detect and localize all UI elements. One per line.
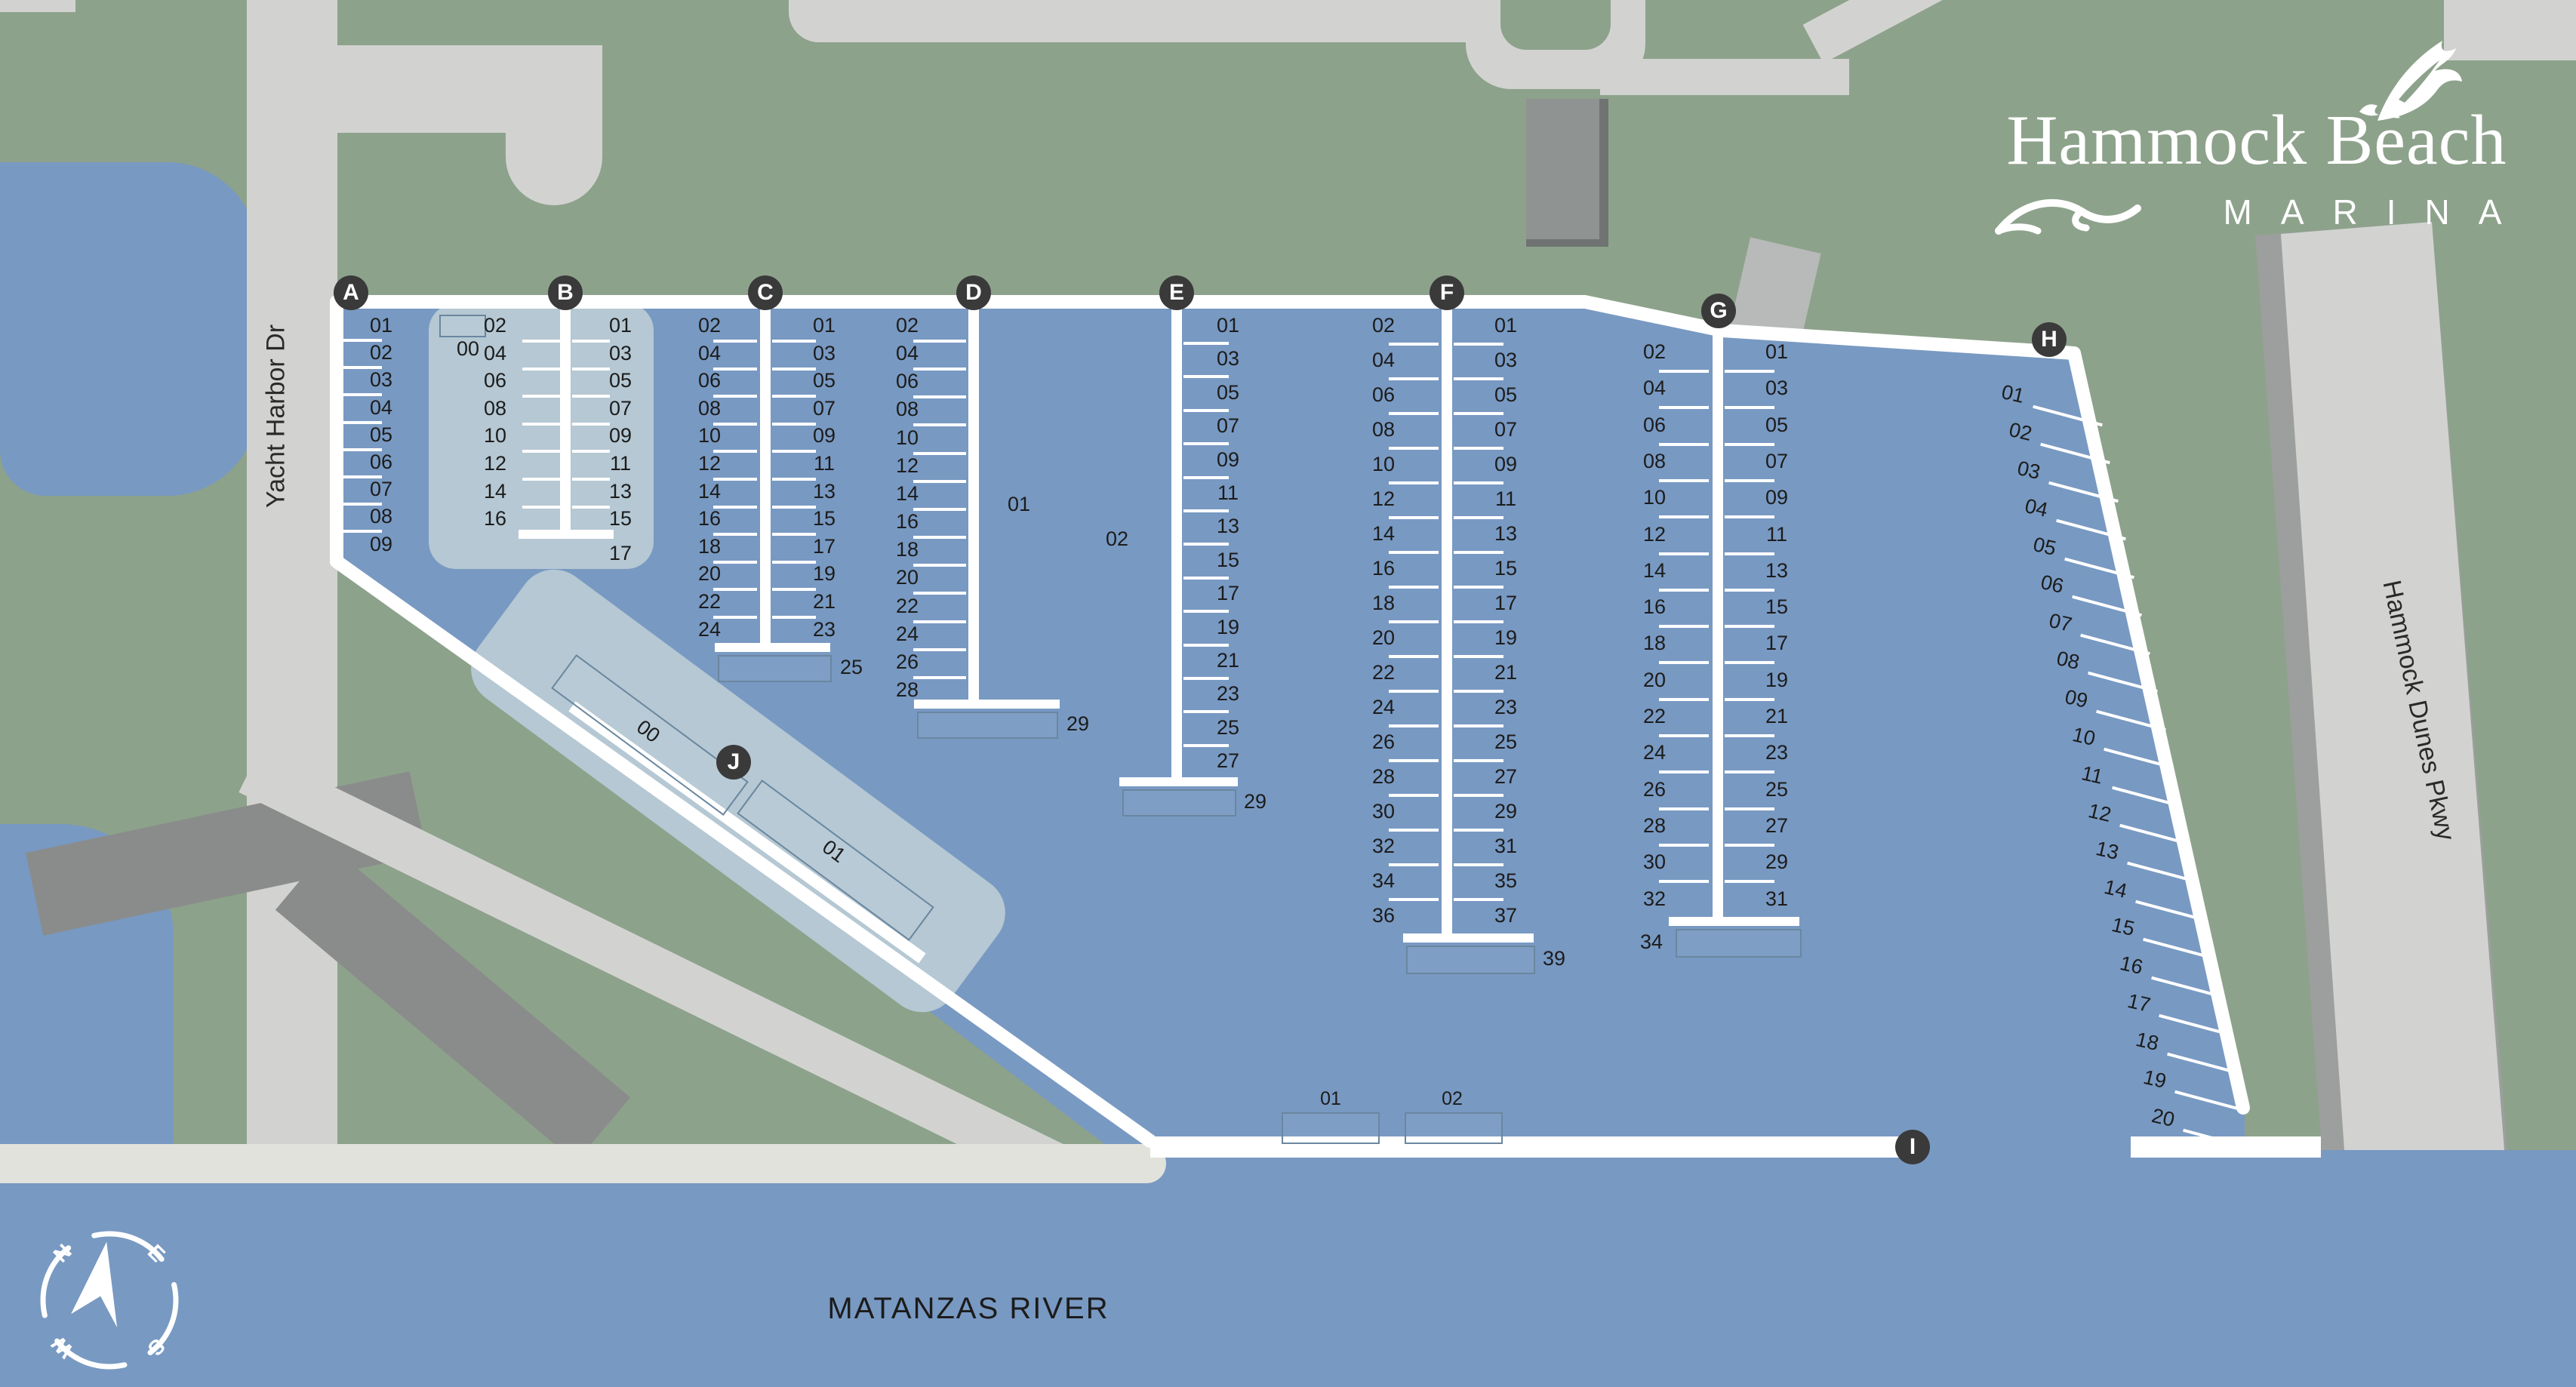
dock-d-slips: 26 <box>882 650 933 674</box>
logo-subtitle: MARINA <box>2166 192 2559 232</box>
dock-b-slips: 13 <box>595 479 646 503</box>
dock-f-slips: 01 <box>1480 313 1531 337</box>
dock-d-slips: 16 <box>882 509 933 534</box>
dock-g-slips: 19 <box>1751 668 1802 692</box>
dock-g-ticks <box>1659 479 1709 482</box>
dock-g-ticks <box>1725 661 1774 664</box>
dock-marker-c: C <box>748 275 783 310</box>
dock-a-slips: 04 <box>355 395 407 420</box>
dock-b-slips: 05 <box>595 368 646 392</box>
dock-b-ticks <box>522 423 560 426</box>
dock-f-slips: 06 <box>1358 383 1409 407</box>
dock-b-slips: 15 <box>595 506 646 531</box>
dock-f-ticks <box>1389 412 1439 415</box>
dock-f-slips: 23 <box>1480 695 1531 719</box>
dock-c-slips: 19 <box>799 561 850 586</box>
dock-c-slips: 08 <box>684 396 735 420</box>
dock-f-slips: 20 <box>1358 626 1409 650</box>
dock-f-slips: 19 <box>1480 626 1531 650</box>
dock-g-ticks <box>1725 734 1774 737</box>
dock-tbar-g <box>1669 917 1799 926</box>
dock-g-ticks <box>1725 625 1774 628</box>
dock-g-ticks <box>1725 589 1774 592</box>
river-label: MATANZAS RIVER <box>742 1292 1195 1326</box>
dock-g-slips: 13 <box>1751 558 1802 583</box>
slip-label: 01 <box>993 492 1045 516</box>
dock-tbar-c <box>715 643 830 652</box>
dock-g-ticks <box>1659 406 1709 409</box>
dock-f-slips: 25 <box>1480 730 1531 754</box>
dock-e-slips: 05 <box>1202 380 1254 404</box>
dock-g-slips: 25 <box>1751 777 1802 801</box>
dock-f-ticks <box>1389 863 1439 866</box>
dock-b-ticks <box>522 478 560 481</box>
dock-marker-i: I <box>1895 1130 1930 1164</box>
dock-b-slips: 10 <box>469 423 521 447</box>
dock-g-ticks <box>1725 515 1774 518</box>
dock-g-slips: 18 <box>1629 631 1680 655</box>
dock-g-slips: 09 <box>1751 485 1802 509</box>
dock-e-ticks <box>1183 744 1229 747</box>
slip-label: 02 <box>1091 527 1143 551</box>
dock-f-slips: 14 <box>1358 521 1409 546</box>
dock-c-slips: 02 <box>684 313 735 337</box>
dock-f-ticks <box>1454 481 1503 484</box>
dock-e-slips: 07 <box>1202 414 1254 438</box>
dock-e-slips: 01 <box>1202 313 1254 337</box>
dock-marker-a: A <box>334 275 368 310</box>
wave-icon <box>1993 178 2166 246</box>
dock-pier-e <box>1171 302 1182 782</box>
dock-f-slips: 09 <box>1480 452 1531 476</box>
dock-c-slips: 16 <box>684 506 735 531</box>
dock-b-ticks <box>522 395 560 398</box>
dock-e-ticks <box>1183 442 1229 445</box>
dock-b-ticks <box>522 340 560 343</box>
dock-g-slips: 05 <box>1751 413 1802 437</box>
dock-b-slips: 11 <box>595 451 646 475</box>
dock-g-slips: 29 <box>1751 850 1802 874</box>
dock-d-slips: 02 <box>882 313 933 337</box>
dock-e-ticks <box>1183 710 1229 713</box>
dock-g-slips: 23 <box>1751 740 1802 764</box>
dock-f-ticks <box>1454 655 1503 658</box>
dock-g-slips: 11 <box>1751 522 1802 546</box>
dock-b-slips: 14 <box>469 479 521 503</box>
dock-g-ticks <box>1659 734 1709 737</box>
dock-pier-g <box>1713 329 1723 921</box>
dock-tbar-e <box>1119 777 1238 786</box>
dock-g-slips: 31 <box>1751 887 1802 911</box>
dock-g-slips: 22 <box>1629 704 1680 728</box>
dock-c-slips: 15 <box>799 506 850 531</box>
dock-g-ticks <box>1725 698 1774 701</box>
slip-outline <box>1405 1112 1503 1144</box>
dock-f-ticks <box>1454 620 1503 623</box>
slip-outline <box>718 655 832 682</box>
dock-g-slips: 28 <box>1629 813 1680 838</box>
dock-g-slips: 14 <box>1629 558 1680 583</box>
slip-label: 29 <box>1230 789 1281 813</box>
dock-g-ticks <box>1725 552 1774 555</box>
dock-c-slips: 05 <box>799 368 850 392</box>
dock-g-slips: 27 <box>1751 813 1802 838</box>
dock-g-ticks <box>1659 443 1709 446</box>
dock-f-ticks <box>1389 690 1439 693</box>
dock-f-ticks <box>1454 863 1503 866</box>
dock-f-slips: 13 <box>1480 521 1531 546</box>
dock-e-ticks <box>1183 577 1229 580</box>
dock-f-ticks <box>1389 724 1439 727</box>
dock-f-ticks <box>1454 343 1503 346</box>
dock-c-slips: 23 <box>799 617 850 641</box>
dock-f-ticks <box>1389 377 1439 380</box>
dock-f-ticks <box>1389 447 1439 450</box>
dock-f-ticks <box>1389 620 1439 623</box>
dock-f-ticks <box>1454 377 1503 380</box>
dock-c-slips: 14 <box>684 479 735 503</box>
dock-d-slips: 20 <box>882 565 933 589</box>
dock-f-slips: 18 <box>1358 591 1409 615</box>
dock-g-slips: 20 <box>1629 668 1680 692</box>
dock-f-slips: 35 <box>1480 869 1531 893</box>
dock-f-ticks <box>1454 447 1503 450</box>
dock-e-ticks <box>1183 543 1229 546</box>
dock-f-slips: 17 <box>1480 591 1531 615</box>
dock-g-ticks <box>1659 515 1709 518</box>
dock-c-slips: 10 <box>684 423 735 447</box>
dock-e-slips: 09 <box>1202 447 1254 472</box>
dock-f-slips: 05 <box>1480 383 1531 407</box>
dock-e-slips: 03 <box>1202 346 1254 371</box>
dock-f-slips: 16 <box>1358 556 1409 580</box>
dock-g-slips: 03 <box>1751 376 1802 400</box>
dock-pier-b <box>560 302 571 537</box>
dock-g-ticks <box>1659 844 1709 847</box>
dock-g-slips: 04 <box>1629 376 1680 400</box>
dock-f-slips: 07 <box>1480 417 1531 441</box>
dock-c-slips: 03 <box>799 341 850 365</box>
dock-a-slips: 06 <box>355 450 407 474</box>
dock-f-slips: 34 <box>1358 869 1409 893</box>
dock-f-ticks <box>1389 343 1439 346</box>
dock-f-ticks <box>1389 898 1439 901</box>
dock-b-slips: 08 <box>469 396 521 420</box>
dock-e-ticks <box>1183 610 1229 613</box>
dock-e-ticks <box>1183 644 1229 647</box>
dock-f-slips: 27 <box>1480 764 1531 789</box>
dock-c-slips: 07 <box>799 396 850 420</box>
dock-b-ticks <box>522 450 560 453</box>
dock-f-ticks <box>1454 412 1503 415</box>
dock-g-ticks <box>1725 770 1774 773</box>
dock-d-slips: 24 <box>882 622 933 646</box>
dock-tbar-f <box>1403 933 1534 943</box>
dock-f-ticks <box>1454 759 1503 762</box>
dock-c-slips: 24 <box>684 617 735 641</box>
dock-g-slips: 32 <box>1629 887 1680 911</box>
dock-g-ticks <box>1659 552 1709 555</box>
dock-a-slips: 07 <box>355 477 407 501</box>
dock-c-slips: 04 <box>684 341 735 365</box>
dock-marker-e: E <box>1159 275 1194 310</box>
dock-d-slips: 04 <box>882 341 933 365</box>
slip-label: 25 <box>826 655 877 679</box>
dock-d-slips: 10 <box>882 426 933 450</box>
dock-g-slips: 10 <box>1629 485 1680 509</box>
dock-marker-g: G <box>1701 294 1736 328</box>
dock-f-ticks <box>1389 655 1439 658</box>
dock-c-slips: 20 <box>684 561 735 586</box>
dock-b-ticks <box>522 533 560 536</box>
dock-e-slips: 11 <box>1202 481 1254 505</box>
dock-marker-h: H <box>2032 322 2067 357</box>
dock-a-slips: 01 <box>355 313 407 337</box>
dock-f-ticks <box>1454 724 1503 727</box>
dock-marker-d: D <box>956 275 991 310</box>
dock-e-ticks <box>1183 409 1229 412</box>
dock-f-slips: 24 <box>1358 695 1409 719</box>
slip-outline <box>1282 1112 1380 1144</box>
dock-e-slips: 19 <box>1202 615 1254 639</box>
dock-pier-c <box>760 302 771 647</box>
dock-f-slips: 22 <box>1358 660 1409 684</box>
dock-b-slips: 09 <box>595 423 646 447</box>
slip-outline <box>1406 946 1535 974</box>
dock-g-ticks <box>1659 770 1709 773</box>
dock-f-slips: 15 <box>1480 556 1531 580</box>
dock-f-ticks <box>1454 898 1503 901</box>
dock-f-ticks <box>1389 829 1439 832</box>
dock-e-slips: 17 <box>1202 581 1254 605</box>
dock-f-ticks <box>1389 759 1439 762</box>
marina-map: Hammock Beach MARINA N E S W MATANZAS RI… <box>0 0 2576 1387</box>
dock-f-slips: 26 <box>1358 730 1409 754</box>
dock-g-ticks <box>1725 807 1774 810</box>
dock-b-slips: 06 <box>469 368 521 392</box>
dock-f-slips: 12 <box>1358 487 1409 511</box>
dock-c-slips: 09 <box>799 423 850 447</box>
dock-g-ticks <box>1725 479 1774 482</box>
slip-label: 39 <box>1528 946 1580 970</box>
dock-g-slips: 21 <box>1751 704 1802 728</box>
dock-pier-f <box>1442 302 1452 938</box>
dock-f-ticks <box>1389 516 1439 519</box>
slip-label: 29 <box>1052 712 1103 736</box>
dock-b-slips: 07 <box>595 396 646 420</box>
slip-label: 00 <box>442 337 494 361</box>
dock-a-slips: 08 <box>355 504 407 528</box>
dock-g-slips: 07 <box>1751 449 1802 473</box>
dock-f-slips: 02 <box>1358 313 1409 337</box>
dock-d-slips: 06 <box>882 369 933 393</box>
dock-g-slips: 08 <box>1629 449 1680 473</box>
dock-b-slips: 02 <box>469 313 521 337</box>
compass-rose: N E S W <box>30 1221 189 1379</box>
dock-j-walkway <box>572 706 922 958</box>
dock-g-slips: 12 <box>1629 522 1680 546</box>
dock-g-ticks <box>1659 698 1709 701</box>
dock-f-ticks <box>1389 481 1439 484</box>
dock-f-slips: 03 <box>1480 348 1531 372</box>
dock-g-slips: 30 <box>1629 850 1680 874</box>
dock-marker-j: J <box>716 745 751 780</box>
dock-d-slips: 14 <box>882 481 933 506</box>
dock-g-slips: 01 <box>1751 340 1802 364</box>
dock-g-ticks <box>1725 370 1774 373</box>
dock-g-ticks <box>1725 443 1774 446</box>
dock-c-slips: 06 <box>684 368 735 392</box>
dock-g-ticks <box>1725 406 1774 409</box>
slip-label: 34 <box>1626 930 1677 954</box>
dock-f-slips: 21 <box>1480 660 1531 684</box>
dock-c-slips: 01 <box>799 313 850 337</box>
dock-f-slips: 30 <box>1358 799 1409 823</box>
dock-b-slips: 16 <box>469 506 521 531</box>
dock-b-ticks <box>522 506 560 509</box>
dock-g-ticks <box>1725 844 1774 847</box>
dock-e-slips: 21 <box>1202 648 1254 672</box>
dock-f-slips: 04 <box>1358 348 1409 372</box>
slip-label: 01 <box>1305 1087 1356 1111</box>
logo: Hammock Beach MARINA <box>1977 27 2559 231</box>
dock-f-ticks <box>1454 586 1503 589</box>
dock-e-slips: 23 <box>1202 681 1254 706</box>
dock-c-slips: 17 <box>799 534 850 558</box>
dock-f-ticks <box>1454 516 1503 519</box>
dock-d-slips: 08 <box>882 397 933 421</box>
road-label-yacht-harbor: Yacht Harbor Dr <box>262 296 291 537</box>
dock-f-slips: 08 <box>1358 417 1409 441</box>
dock-f-slips: 32 <box>1358 834 1409 858</box>
dock-b-slips: 03 <box>595 341 646 365</box>
dock-g-slips: 17 <box>1751 631 1802 655</box>
dock-b-slips: 12 <box>469 451 521 475</box>
slip-outline <box>1122 789 1236 817</box>
dock-c-slips: 12 <box>684 451 735 475</box>
dock-g-slips: 26 <box>1629 777 1680 801</box>
logo-title: Hammock Beach <box>1977 100 2536 181</box>
dock-a-slips: 03 <box>355 368 407 392</box>
dock-g-ticks <box>1659 370 1709 373</box>
dock-a-slips: 09 <box>355 532 407 556</box>
dock-tbar-d <box>914 700 1060 709</box>
dock-c-slips: 13 <box>799 479 850 503</box>
slip-outline <box>917 712 1058 739</box>
dock-g-ticks <box>1659 625 1709 628</box>
dock-d-slips: 18 <box>882 537 933 561</box>
dock-c-slips: 21 <box>799 589 850 614</box>
dock-g-ticks <box>1659 880 1709 883</box>
dock-f-slips: 31 <box>1480 834 1531 858</box>
dock-d-slips: 12 <box>882 454 933 478</box>
dock-g-slips: 06 <box>1629 413 1680 437</box>
dock-e-ticks <box>1183 375 1229 378</box>
dock-g-slips: 24 <box>1629 740 1680 764</box>
dock-f-slips: 10 <box>1358 452 1409 476</box>
dock-marker-b: B <box>548 275 583 310</box>
dock-e-slips: 15 <box>1202 548 1254 572</box>
dock-a-slips: 02 <box>355 340 407 364</box>
dock-pier-d <box>968 302 979 704</box>
dock-f-slips: 37 <box>1480 903 1531 927</box>
dock-g-ticks <box>1659 807 1709 810</box>
dock-f-ticks <box>1454 829 1503 832</box>
dock-i-wharf <box>1150 1136 1907 1158</box>
dock-f-ticks <box>1454 690 1503 693</box>
dock-f-slips: 29 <box>1480 799 1531 823</box>
dock-b-slips: 01 <box>595 313 646 337</box>
dock-g-ticks <box>1725 880 1774 883</box>
dock-e-slips: 13 <box>1202 514 1254 538</box>
dock-f-slips: 28 <box>1358 764 1409 789</box>
dock-g-slips: 15 <box>1751 595 1802 619</box>
dock-f-ticks <box>1454 794 1503 797</box>
dock-e-ticks <box>1183 509 1229 512</box>
dock-c-slips: 11 <box>799 451 850 475</box>
dock-f-ticks <box>1389 586 1439 589</box>
slip-label: 17 <box>595 541 646 565</box>
dock-c-slips: 18 <box>684 534 735 558</box>
dock-b-ticks <box>572 533 610 536</box>
dock-a-slips: 05 <box>355 423 407 447</box>
dock-e-ticks <box>1183 677 1229 680</box>
dock-g-ticks <box>1659 661 1709 664</box>
dock-g-slips: 02 <box>1629 340 1680 364</box>
dock-marker-f: F <box>1430 275 1464 310</box>
dock-g-slips: 16 <box>1629 595 1680 619</box>
dock-e-slips: 25 <box>1202 715 1254 740</box>
slip-outline <box>1676 929 1802 958</box>
slip-label: 02 <box>1426 1087 1478 1111</box>
dock-f-ticks <box>1454 551 1503 554</box>
dock-c-slips: 22 <box>684 589 735 614</box>
dock-f-slips: 36 <box>1358 903 1409 927</box>
dock-e-slips: 27 <box>1202 749 1254 773</box>
dock-b-ticks <box>522 368 560 371</box>
dock-d-slips: 28 <box>882 678 933 702</box>
dock-g-ticks <box>1659 589 1709 592</box>
dock-d-slips: 22 <box>882 594 933 618</box>
dock-f-ticks <box>1389 794 1439 797</box>
dock-e-ticks <box>1183 476 1229 479</box>
dock-e-ticks <box>1183 342 1229 345</box>
dock-f-ticks <box>1389 551 1439 554</box>
dock-f-slips: 11 <box>1480 487 1531 511</box>
